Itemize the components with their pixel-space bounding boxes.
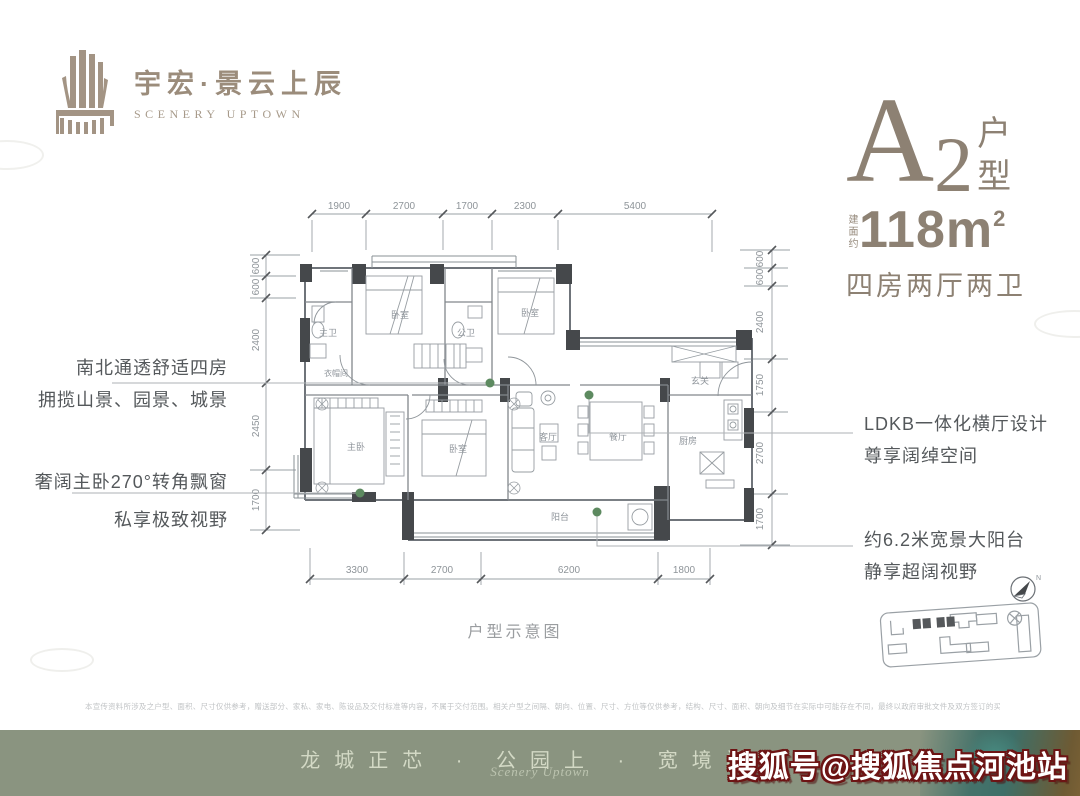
annotation-line: 南北通透舒适四房 <box>38 352 228 384</box>
svg-text:2400: 2400 <box>755 310 766 333</box>
annotation-line: 约6.2米宽景大阳台 <box>864 524 1025 556</box>
svg-text:2400: 2400 <box>251 328 262 351</box>
svg-text:2700: 2700 <box>431 565 454 576</box>
svg-text:5400: 5400 <box>624 201 647 212</box>
svg-text:客厅: 客厅 <box>539 431 557 442</box>
annotation-left-bottom: 奢阔主卧270°转角飘窗 私享极致视野 <box>35 466 228 536</box>
svg-text:衣帽间: 衣帽间 <box>324 368 348 378</box>
dimension-right-labels: 600 600 2400 1750 2700 1700 <box>755 250 766 530</box>
svg-text:卧室: 卧室 <box>521 307 539 318</box>
svg-text:卧室: 卧室 <box>391 309 409 320</box>
svg-text:1700: 1700 <box>755 507 766 530</box>
disclaimer-text: 本宣传资料所涉及之户型、面积、尺寸仅供参考，赠送部分、家私、家电、陈设品及交付标… <box>85 701 1000 712</box>
dimension-left-labels: 600 600 2400 2450 1700 <box>251 257 262 511</box>
annotation-right-top: LDKB一体化横厅设计 尊享阔绰空间 <box>864 408 1048 472</box>
svg-text:1700: 1700 <box>251 488 262 511</box>
annotation-right-bottom: 约6.2米宽景大阳台 静享超阔视野 <box>864 524 1025 588</box>
svg-text:2300: 2300 <box>514 201 537 212</box>
svg-text:600: 600 <box>755 250 766 267</box>
svg-text:1900: 1900 <box>328 201 351 212</box>
svg-text:3300: 3300 <box>346 565 369 576</box>
svg-text:1700: 1700 <box>456 201 479 212</box>
svg-text:1800: 1800 <box>673 565 696 576</box>
svg-text:玄关: 玄关 <box>691 375 709 386</box>
sohu-watermark: 搜狐号@搜狐焦点河池站 <box>728 742 1068 786</box>
flyer-page: 宇宏·景云上辰 SCENERY UPTOWN A 2 户 型 建面约 118m … <box>0 0 1080 796</box>
dimension-top <box>308 210 716 252</box>
plan-interior-walls <box>305 268 752 520</box>
svg-text:主卫: 主卫 <box>319 327 337 338</box>
plan-doors <box>314 302 752 419</box>
dimension-bottom-labels: 3300 2700 6200 1800 <box>346 565 696 576</box>
room-labels: 主卫 卧室 公卫 卧室 玄关 衣帽间 主卧 卧室 客厅 餐厅 厨房 阳台 <box>319 307 709 522</box>
svg-text:1750: 1750 <box>755 373 766 396</box>
annotation-line: 尊享阔绰空间 <box>864 440 1048 472</box>
svg-text:2700: 2700 <box>393 201 416 212</box>
footer-bar: 龙城正芯 · 公园上 · 宽境阔邸 Scenery Uptown 搜狐号@搜狐焦… <box>0 730 1080 796</box>
svg-text:主卧: 主卧 <box>347 441 365 452</box>
svg-text:阳台: 阳台 <box>551 511 569 522</box>
svg-text:600: 600 <box>251 278 262 295</box>
annotation-line: 奢阔主卧270°转角飘窗 <box>35 466 228 498</box>
svg-text:公卫: 公卫 <box>457 328 475 338</box>
callout-dots <box>356 379 602 517</box>
annotation-line: 拥揽山景、园景、城景 <box>38 384 228 416</box>
svg-text:卧室: 卧室 <box>449 443 467 454</box>
annotation-line: 静享超阔视野 <box>864 556 1025 588</box>
svg-text:600: 600 <box>755 268 766 285</box>
svg-text:厨房: 厨房 <box>679 435 697 446</box>
svg-text:2450: 2450 <box>251 414 262 437</box>
key-plan <box>880 602 1041 667</box>
annotation-line: 私享极致视野 <box>35 504 228 536</box>
plan-wall-columns <box>300 264 754 540</box>
svg-text:6200: 6200 <box>558 565 581 576</box>
svg-text:600: 600 <box>251 257 262 274</box>
annotation-left-top: 南北通透舒适四房 拥揽山景、园景、城景 <box>38 352 228 416</box>
svg-text:2700: 2700 <box>755 441 766 464</box>
svg-text:N: N <box>1036 575 1041 582</box>
plan-caption: 户型示意图 <box>455 618 575 642</box>
dimension-top-labels: 1900 2700 1700 2300 5400 <box>328 201 647 212</box>
annotation-line: LDKB一体化横厅设计 <box>864 408 1048 440</box>
